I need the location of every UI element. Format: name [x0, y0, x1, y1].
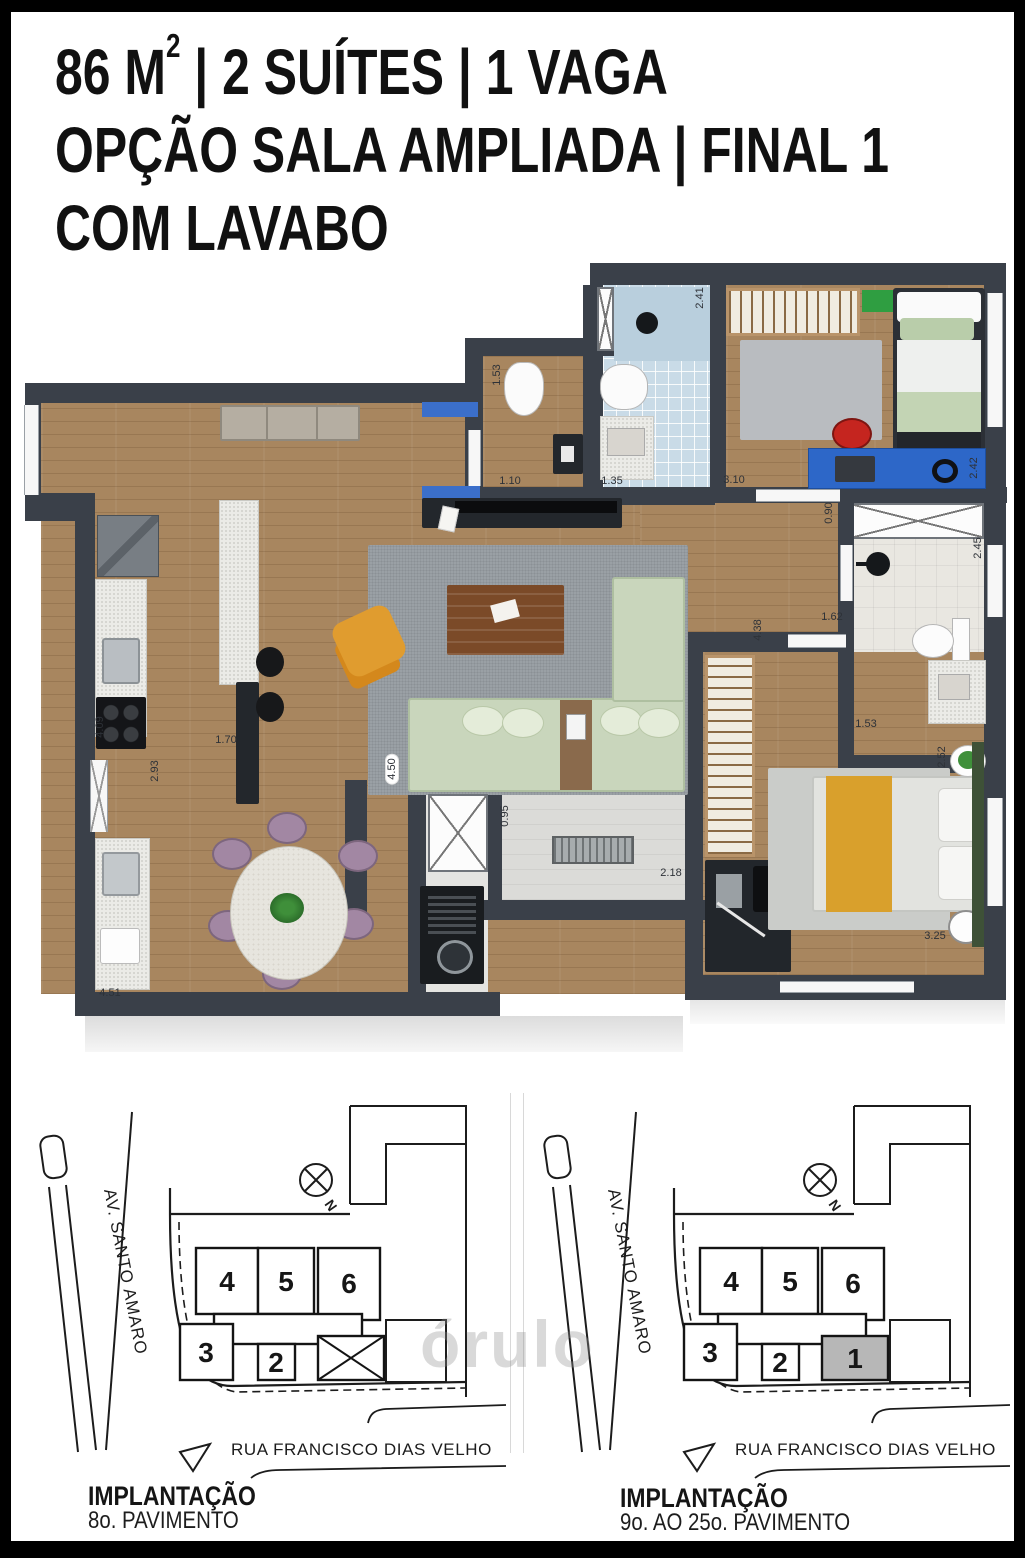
table-plant: [270, 893, 304, 923]
avenue-label: AV. SANTO AMARO: [604, 1187, 655, 1356]
unit-number: 5: [782, 1266, 798, 1297]
dimension-label: 1.62: [821, 611, 842, 623]
dimension-label: 1.35: [601, 475, 622, 487]
sofa-chaise: [612, 577, 685, 702]
north-label: N: [826, 1197, 845, 1214]
street-line: [368, 1405, 506, 1423]
dimension-label: 3.10: [723, 474, 744, 486]
unit-number: 2: [772, 1347, 788, 1378]
dimension-label: 2.45: [972, 537, 984, 558]
dimension-label: 1.70: [215, 734, 236, 746]
site-plan-8th-floor: 4 5 6 3 2 AV. SANTO AMARO N RUA FRANCISC…: [18, 1092, 508, 1482]
road-island: [39, 1135, 68, 1180]
street-arrow: [180, 1444, 210, 1471]
street-label: RUA FRANCISCO DIAS VELHO: [231, 1440, 492, 1459]
dimension-label: 2.42: [968, 457, 980, 478]
unit-number: 4: [219, 1266, 235, 1297]
unit-number: 3: [198, 1337, 214, 1368]
dimension-label: 4.50: [386, 754, 398, 783]
unit-number: 6: [845, 1268, 861, 1299]
dimension-label: 2.52: [936, 746, 948, 767]
unit-number: 5: [278, 1266, 294, 1297]
sofa-pillow: [600, 706, 642, 736]
dimension-label: 1.10: [499, 475, 520, 487]
dimension-label: 2.18: [660, 867, 681, 879]
unit-number: 6: [341, 1268, 357, 1299]
siteplan-caption-subtitle: 8o. PAVIMENTO: [88, 1507, 239, 1535]
dimension-label: 1.53: [491, 364, 503, 385]
unit-number: 2: [268, 1347, 284, 1378]
frame-bottom: [0, 1541, 1025, 1558]
road-island: [543, 1135, 572, 1180]
unit-number-highlighted: 1: [847, 1343, 863, 1374]
street-label: RUA FRANCISCO DIAS VELHO: [735, 1440, 996, 1459]
street-arrow: [684, 1444, 714, 1471]
north-compass-icon: [808, 1168, 832, 1192]
dimension-label: 1.53: [855, 718, 876, 730]
road-median: [49, 1185, 96, 1452]
street-line: [251, 1466, 506, 1478]
north-compass-icon: [304, 1168, 328, 1192]
tv: [455, 501, 617, 513]
sofa-pillow: [502, 708, 544, 738]
dimension-label: 4.51: [99, 987, 120, 999]
photo-frame: [566, 714, 586, 740]
dimension-label: 4.09: [94, 716, 106, 737]
site-plan-9th-25th-floor: 4 5 6 3 2 1 AV. SANTO AMARO N RUA FRANCI…: [522, 1092, 1012, 1482]
north-label: N: [322, 1197, 341, 1214]
sofa-pillow: [638, 708, 680, 738]
unit-number: 4: [723, 1266, 739, 1297]
dimension-label: 3.25: [924, 930, 945, 942]
floor-plan-render: 2.411.531.101.353.102.420.902.451.624.38…: [0, 0, 1025, 1080]
dimension-labels-layer: 2.411.531.101.353.102.420.902.451.624.38…: [0, 0, 1025, 1080]
unit-number: 3: [702, 1337, 718, 1368]
dimension-label: 4.38: [752, 619, 764, 640]
siteplan-caption-subtitle: 9o. AO 25o. PAVIMENTO: [620, 1509, 850, 1537]
orulo-watermark: órulo: [420, 1306, 595, 1382]
floor-plan-flyer: 86 M2 | 2 SUÍTES | 1 VAGA OPÇÃO SALA AMP…: [0, 0, 1025, 1558]
avenue-label: AV. SANTO AMARO: [100, 1187, 151, 1356]
dimension-label: 2.41: [694, 287, 706, 308]
street-line: [872, 1405, 1010, 1423]
neighbor-block: [890, 1320, 950, 1382]
dimension-label: 0.95: [499, 805, 511, 826]
sofa-pillow: [462, 706, 504, 736]
dimension-label: 2.93: [149, 760, 161, 781]
street-line: [755, 1466, 1010, 1478]
dimension-label: 0.90: [823, 502, 835, 523]
